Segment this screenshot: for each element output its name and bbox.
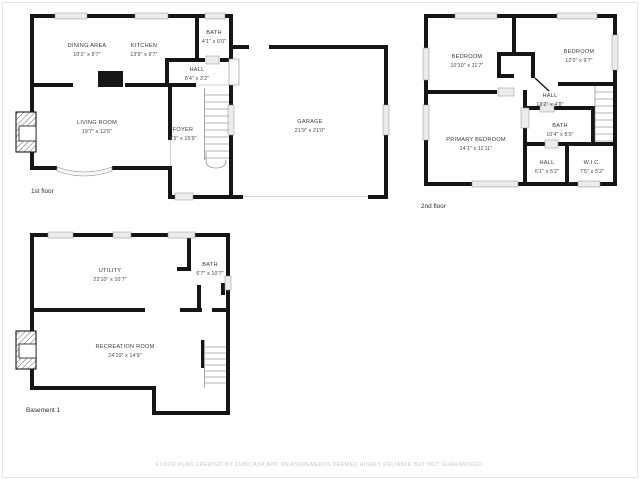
room-dims: 8'4" x 3'2": [185, 76, 209, 82]
room-dims: 24'10" x 14'9": [108, 353, 141, 359]
room-label: UTILITY: [99, 268, 122, 274]
room-dims: 21'9" x 21'0": [295, 128, 325, 134]
basement-side-door: [225, 276, 231, 290]
room-dims: 19'7" x 12'6": [82, 129, 112, 135]
floor-plan-drawing: DINING AREA 10'1" x 9'7" KITCHEN 13'9" x…: [0, 0, 640, 480]
floor-plan-page: DINING AREA 10'1" x 9'7" KITCHEN 13'9" x…: [0, 0, 640, 480]
floor-label-basement: Basement 1: [26, 407, 61, 414]
front-door: [175, 193, 193, 200]
garage-entry-door: [229, 59, 239, 85]
room-dims: 10'1" x 9'7": [73, 52, 100, 58]
bay-window: [57, 167, 112, 176]
room-dims: 13'9" x 9'7": [130, 52, 157, 58]
room-dims: 6'1" x 5'2": [535, 169, 559, 175]
bedroom-door: [498, 88, 514, 96]
room-dims: 10'10" x 11'7": [450, 63, 483, 69]
room-label: PRIMARY BEDROOM: [446, 137, 506, 143]
floor-label-2nd: 2nd floor: [421, 203, 447, 210]
footer-disclaimer: FLOOR PLAN CREATED BY CUBICASA APP. MEAS…: [156, 462, 484, 468]
primary-bedroom-door: [521, 108, 529, 128]
room-dims: 4'1" x 6'0": [202, 39, 226, 45]
room-label: DINING AREA: [68, 43, 107, 49]
second-floor-stairs: [595, 86, 613, 142]
room-label: BEDROOM: [564, 49, 595, 55]
room-dims: 8'5" x 15'9": [169, 136, 196, 142]
room-dims: 10'4" x 5'0": [546, 132, 573, 138]
room-label: W.I.C.: [584, 160, 601, 166]
bath-door: [545, 140, 558, 148]
room-label: BATH: [552, 123, 568, 129]
room-dims: 7'5" x 5'2": [580, 169, 604, 175]
basement-floor-plan: UTILITY 22'10" x 10'7" BATH 6'7" x 10'7"…: [16, 232, 231, 415]
room-dims: 12'0" x 9'7": [565, 58, 592, 64]
floor-label-1st: 1st floor: [31, 188, 55, 195]
room-dims: 14'1" x 11'11": [460, 146, 493, 152]
room-label: FOYER: [173, 127, 194, 133]
basement-stairs: [201, 340, 226, 388]
bath-door: [206, 56, 219, 64]
basement-walls: [30, 233, 230, 415]
room-label: GARAGE: [297, 119, 322, 125]
first-floor-chimney: [16, 112, 36, 152]
room-label: HALL: [190, 67, 205, 73]
second-floor-plan: BEDROOM 10'10" x 11'7" BEDROOM 12'0" x 9…: [421, 13, 618, 210]
room-label: KITCHEN: [131, 43, 157, 49]
room-label: BATH: [202, 262, 218, 268]
room-dims: 22'10" x 10'7": [93, 277, 126, 283]
room-label: BATH: [206, 30, 222, 36]
room-label: BEDROOM: [452, 54, 483, 60]
room-label: HALL: [543, 93, 558, 99]
room-label: RECREATION ROOM: [96, 344, 155, 350]
room-label: LIVING ROOM: [77, 120, 117, 126]
first-floor-plan: DINING AREA 10'1" x 9'7" KITCHEN 13'9" x…: [16, 13, 389, 200]
basement-chimney: [16, 331, 36, 369]
fireplace: [98, 71, 123, 87]
page-border: [3, 3, 638, 478]
first-floor-stairs: [205, 88, 230, 168]
room-dims: 13'2" x 4'8": [536, 102, 563, 108]
basement-windows: [48, 232, 231, 290]
room-label: HALL: [540, 160, 555, 166]
closet-door-diagonal: [535, 78, 549, 91]
room-dims: 6'7" x 10'7": [196, 271, 223, 277]
